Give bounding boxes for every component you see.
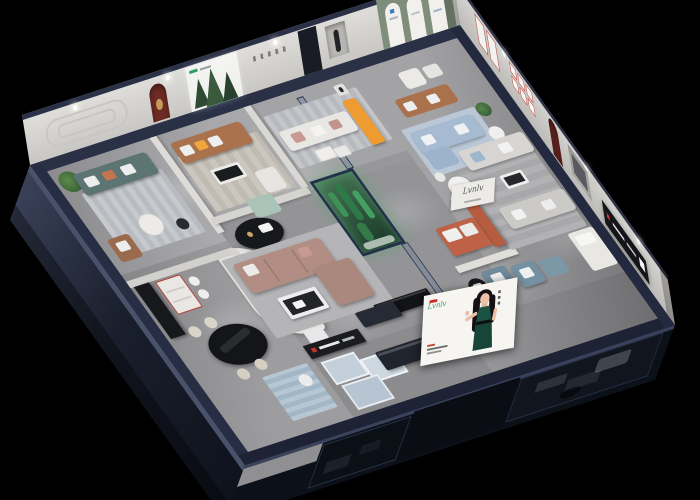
pillow-white	[574, 231, 598, 246]
pillow-white	[242, 263, 261, 276]
pillow-yellow	[194, 140, 210, 151]
shelf-line	[166, 286, 185, 294]
pillow-white	[119, 163, 137, 176]
sign-red-glyph	[311, 347, 318, 352]
pillow-white	[207, 135, 224, 147]
ceiling-spot	[73, 105, 78, 111]
glass-glint	[359, 439, 382, 455]
statue-silhouette	[333, 29, 341, 53]
scene: LvnlvLvnlv	[0, 0, 700, 500]
interior-white-sofa-through-glass	[594, 349, 632, 374]
showroom-render-canvas: LvnlvLvnlv	[0, 0, 700, 500]
band-glyph	[639, 257, 646, 273]
pillow-white	[497, 141, 514, 153]
arch-panel	[384, 1, 406, 48]
pillow-white	[420, 134, 437, 146]
marble-streak	[219, 326, 252, 354]
poster-text-line	[427, 350, 442, 355]
pillow-white	[510, 208, 527, 220]
band-red-dot	[606, 212, 610, 221]
wall-art-dots	[253, 46, 287, 62]
pillow-white	[402, 101, 418, 112]
sign-text-dash	[342, 336, 355, 342]
arch-text-dash	[433, 8, 442, 13]
doorway-opening	[297, 26, 322, 76]
maroon-arch-niche	[148, 81, 170, 122]
arch-logo-blue	[390, 9, 395, 14]
pillow-white	[540, 198, 557, 210]
pillow-blush	[296, 246, 313, 258]
pillow-white	[425, 93, 441, 104]
arch-panel	[405, 0, 427, 41]
pillow-blush	[290, 131, 307, 143]
pillow-white	[518, 267, 535, 279]
pillow-blue	[469, 151, 486, 163]
band-text-dash	[613, 222, 625, 241]
table-top-dark	[503, 173, 525, 186]
pillow-blush	[328, 119, 344, 130]
sign-text-dash	[319, 341, 341, 350]
ceiling-spot	[273, 39, 278, 45]
pillow-white	[453, 123, 470, 135]
glass-glint	[534, 373, 567, 393]
mural-text-dash	[200, 65, 211, 70]
decor-gold	[246, 231, 254, 237]
mural-logo-green	[189, 68, 198, 74]
pillow-white	[115, 240, 132, 252]
gold-figurine	[155, 98, 163, 111]
pillow-white	[309, 125, 326, 137]
cushion-seam	[263, 259, 281, 282]
band-text-dash	[626, 242, 636, 258]
statue	[338, 87, 345, 93]
cactus	[355, 222, 376, 243]
arch-text-dash	[411, 11, 420, 16]
woman-skirt	[472, 322, 493, 352]
statue-niche	[325, 21, 350, 59]
tray-white	[257, 222, 274, 233]
pillow-terracotta	[101, 169, 118, 181]
ceiling-spot	[165, 74, 170, 80]
glass-glint	[323, 454, 352, 474]
shelf-line	[173, 296, 192, 304]
mural-tree	[191, 76, 210, 109]
pillow-white	[83, 175, 101, 188]
arch-text-dash	[389, 16, 398, 21]
pillow-white	[179, 144, 196, 156]
